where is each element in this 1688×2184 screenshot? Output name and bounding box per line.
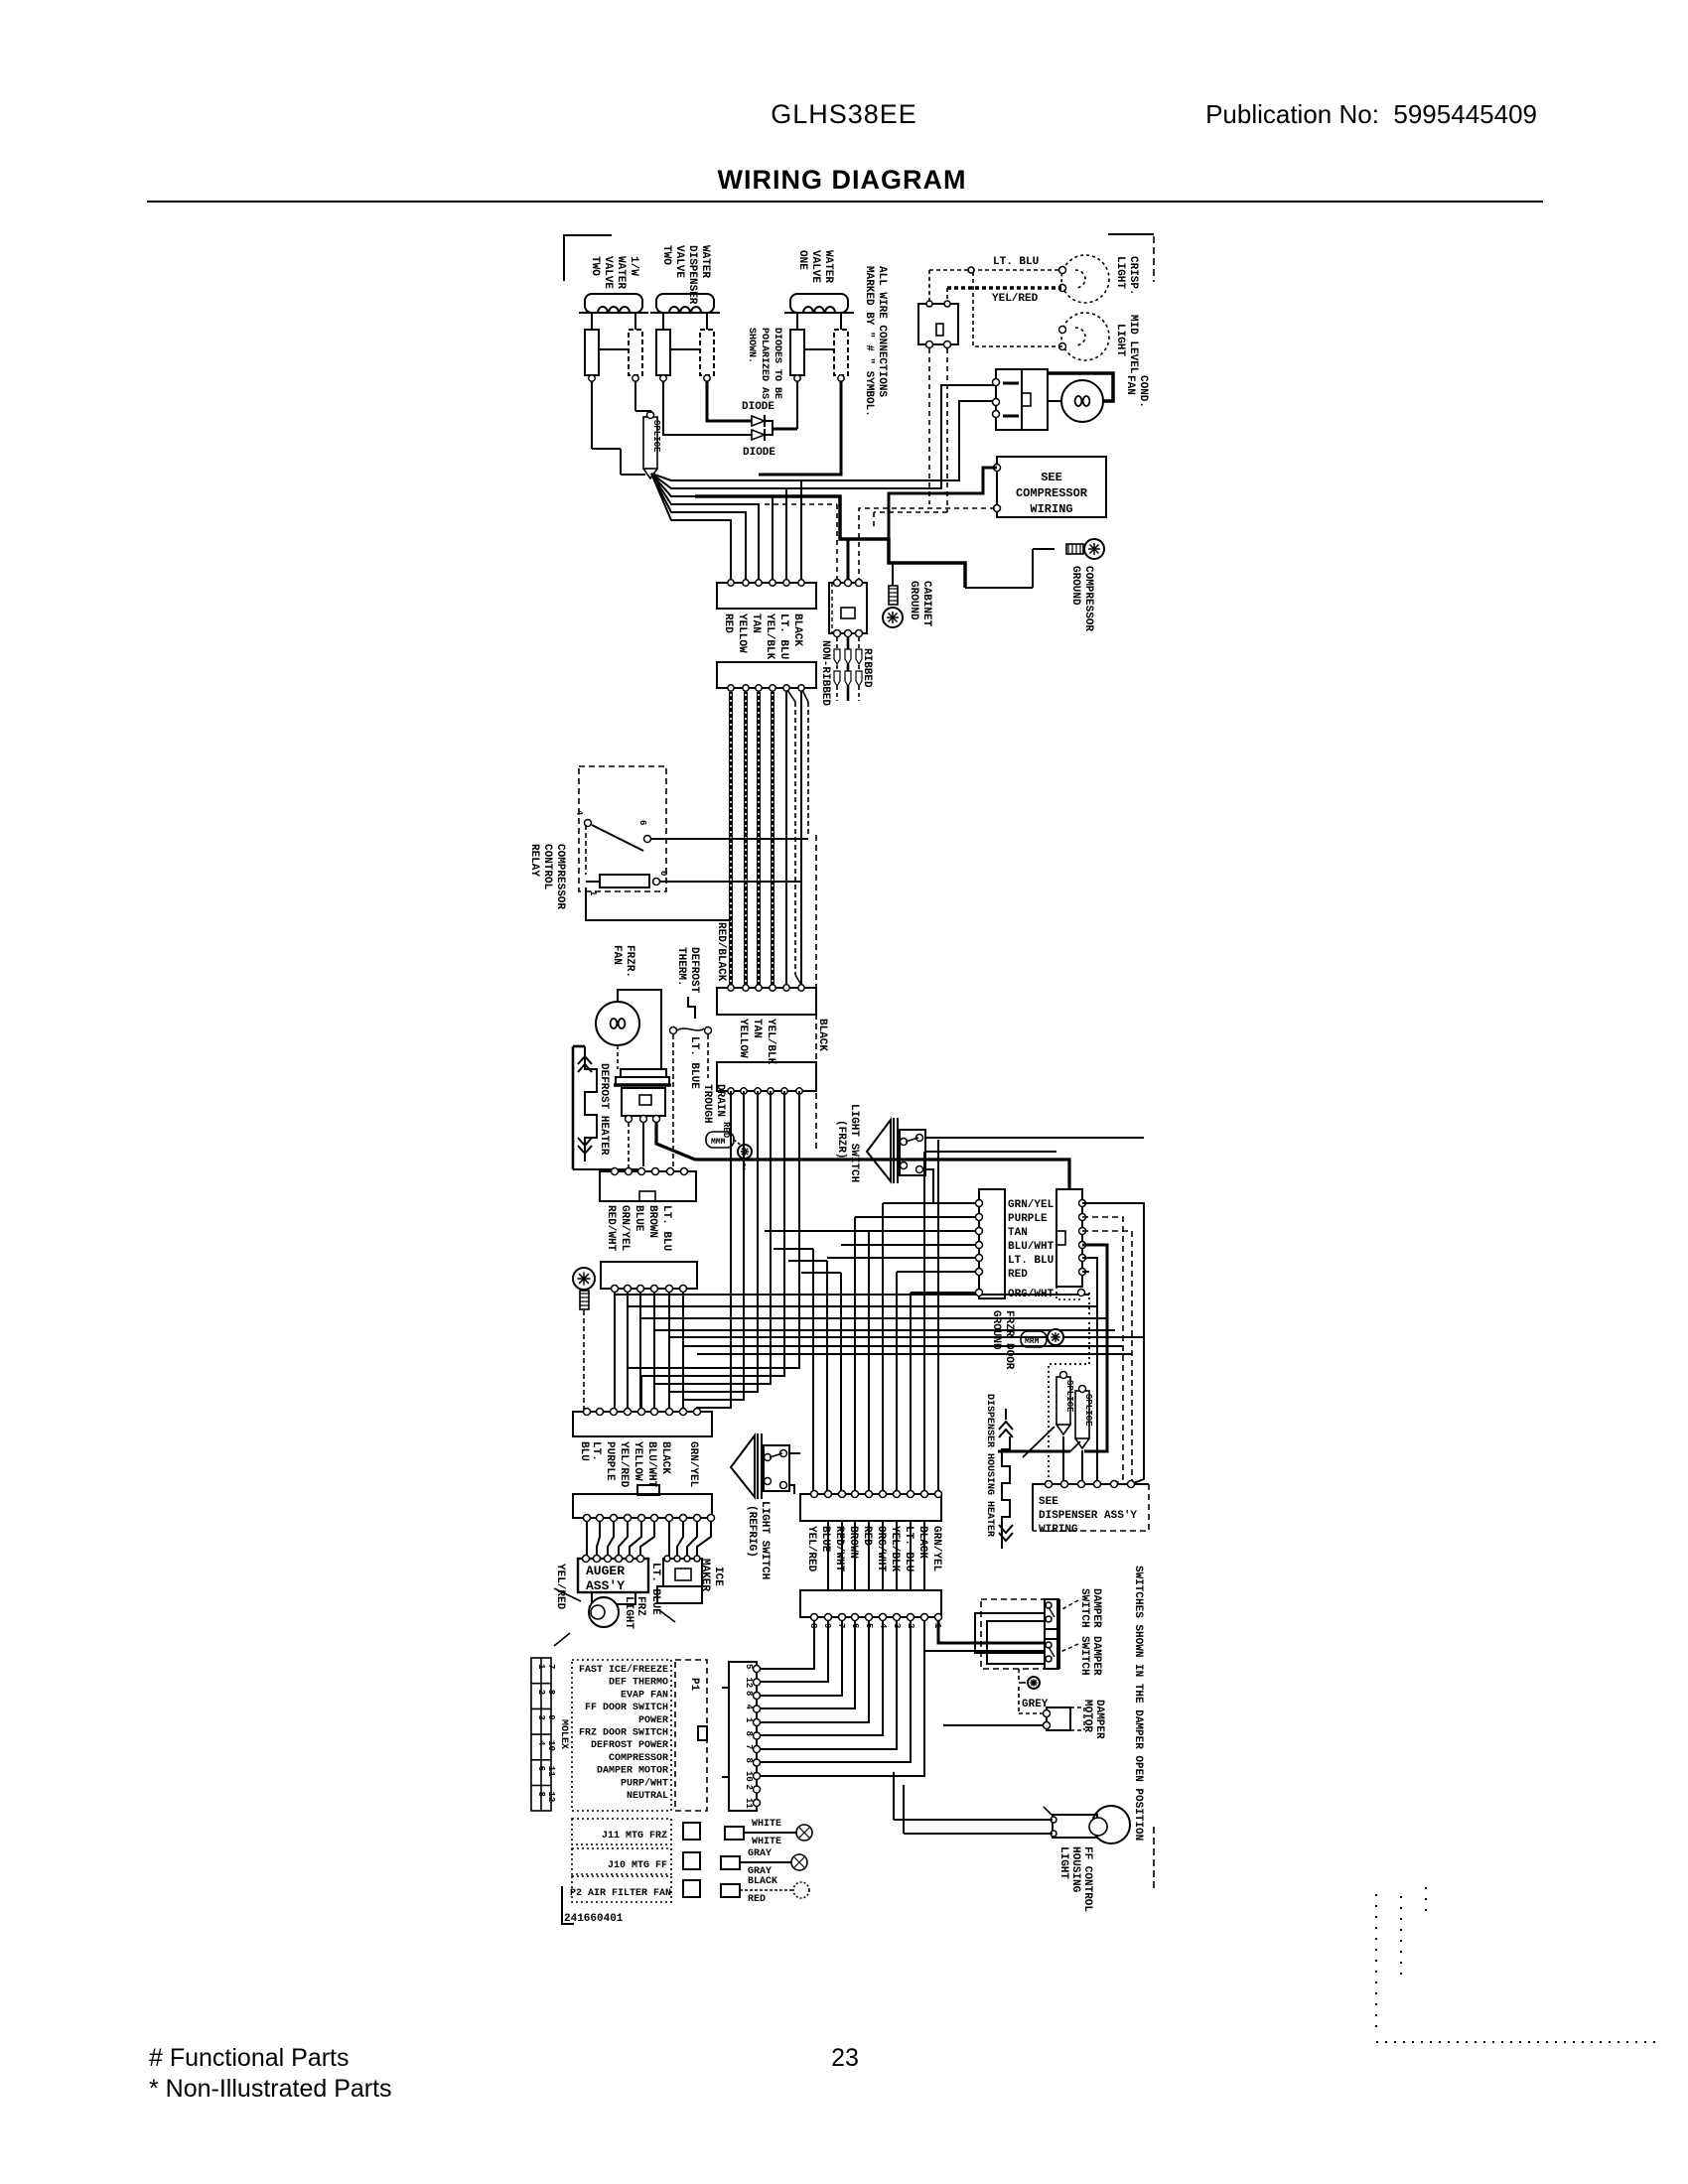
svg-text:FRZ: FRZ — [634, 1596, 646, 1616]
svg-text:WATER: WATER — [822, 250, 834, 283]
svg-text:RED: RED — [1008, 1269, 1028, 1281]
svg-text:POLARIZED AS: POLARIZED AS — [759, 328, 770, 399]
svg-text:LT. BLUE: LT. BLUE — [649, 1563, 661, 1615]
svg-text:GRN/YEL: GRN/YEL — [687, 1441, 699, 1488]
svg-text:RELAY: RELAY — [528, 844, 540, 877]
svg-text:PURPLE: PURPLE — [604, 1441, 616, 1481]
svg-text:LIGHT: LIGHT — [1057, 1846, 1069, 1879]
svg-text:COMPRESSOR: COMPRESSOR — [554, 844, 566, 909]
svg-text:LIGHT: LIGHT — [1114, 256, 1126, 289]
svg-text:FF DOOR SWITCH: FF DOOR SWITCH — [585, 1703, 668, 1713]
svg-text:6: 6 — [536, 1766, 546, 1771]
svg-text:LT.: LT. — [590, 1441, 602, 1461]
svg-text:BLACK: BLACK — [748, 1876, 777, 1887]
svg-text:VALVE: VALVE — [673, 245, 685, 278]
svg-text:ALL WIRE CONNECTIONS: ALL WIRE CONNECTIONS — [876, 266, 888, 397]
svg-text:RED: RED — [721, 1122, 731, 1139]
svg-text:2: 2 — [536, 1690, 546, 1695]
svg-text:YEL/RED: YEL/RED — [992, 293, 1039, 305]
svg-text:VALVE: VALVE — [809, 250, 821, 283]
svg-text:FF CONTROL: FF CONTROL — [1081, 1846, 1093, 1912]
svg-text:LIGHT SWITCH: LIGHT SWITCH — [848, 1104, 860, 1182]
svg-text:8: 8 — [744, 1731, 754, 1736]
svg-text:PURP/WHT: PURP/WHT — [621, 1777, 668, 1789]
svg-text:ORG/WHT: ORG/WHT — [875, 1526, 887, 1572]
svg-text:1/W: 1/W — [628, 256, 639, 276]
svg-text:9: 9 — [822, 1623, 832, 1628]
svg-text:5: 5 — [744, 1664, 754, 1669]
svg-text:YELLOW: YELLOW — [632, 1441, 643, 1481]
svg-text:WIRING: WIRING — [1039, 1524, 1078, 1536]
svg-text:BLACK: BLACK — [659, 1441, 671, 1474]
svg-text:RED/WHT: RED/WHT — [605, 1205, 617, 1252]
svg-text:BLACK: BLACK — [791, 614, 803, 646]
svg-text:FRZR DOOR: FRZR DOOR — [1003, 1310, 1015, 1370]
svg-text:FAST ICE/FREEZE: FAST ICE/FREEZE — [579, 1664, 668, 1676]
svg-text:YEL/BLK: YEL/BLK — [889, 1526, 901, 1572]
svg-text:6: 6 — [637, 820, 647, 825]
svg-text:5: 5 — [864, 1623, 874, 1628]
svg-text:GROUND: GROUND — [990, 1310, 1002, 1350]
svg-text:DIODES TO BE: DIODES TO BE — [772, 328, 782, 399]
svg-text:GROUND: GROUND — [908, 581, 919, 620]
svg-text:3: 3 — [536, 1714, 546, 1719]
svg-text:7: 7 — [836, 1623, 846, 1628]
svg-text:ICE: ICE — [712, 1567, 724, 1586]
svg-text:8: 8 — [744, 1758, 754, 1763]
svg-text:TAN: TAN — [1008, 1227, 1028, 1239]
svg-text:SWITCH: SWITCH — [1078, 1636, 1090, 1676]
svg-text:10: 10 — [546, 1740, 556, 1751]
svg-text:THERM.: THERM. — [675, 947, 687, 987]
svg-text:DRAIN: DRAIN — [714, 1084, 726, 1117]
svg-text:VALVE: VALVE — [602, 256, 614, 289]
svg-text:LT. BLUE: LT. BLUE — [688, 1036, 700, 1089]
svg-text:4: 4 — [536, 1740, 546, 1746]
svg-text:LT. BLU: LT. BLU — [993, 256, 1039, 268]
svg-text:GRN/YEL: GRN/YEL — [930, 1526, 942, 1572]
svg-text:COND.: COND. — [1137, 375, 1149, 408]
svg-text:YELLOW: YELLOW — [736, 614, 748, 653]
svg-text:FRZR.: FRZR. — [624, 945, 635, 978]
svg-text:BLU/WHT: BLU/WHT — [1008, 1241, 1055, 1253]
svg-text:LIGHT SWITCH: LIGHT SWITCH — [759, 1501, 771, 1579]
svg-text:WIRING DIAGRAM: WIRING DIAGRAM — [718, 165, 967, 195]
svg-text:COMPRESSOR: COMPRESSOR — [1082, 566, 1094, 631]
svg-text:DEF THERMO: DEF THERMO — [609, 1678, 668, 1689]
svg-text:DIODE: DIODE — [742, 401, 774, 413]
svg-text:SPLICE: SPLICE — [1083, 1394, 1093, 1427]
svg-text:SPLICE: SPLICE — [1064, 1380, 1074, 1413]
svg-text:P2 AIR FILTER FAN: P2 AIR FILTER FAN — [570, 1888, 671, 1899]
svg-text:WATER: WATER — [699, 245, 711, 278]
svg-text:WHITE: WHITE — [752, 1837, 781, 1847]
svg-text:GLHS38EE: GLHS38EE — [771, 99, 917, 129]
svg-text:DAMPER: DAMPER — [1090, 1636, 1102, 1676]
svg-text:DISPENSER HOUSING HEATER: DISPENSER HOUSING HEATER — [984, 1394, 995, 1537]
svg-text:4: 4 — [744, 1705, 754, 1710]
svg-text:2: 2 — [744, 1785, 754, 1790]
svg-text:TWO: TWO — [589, 256, 601, 276]
svg-text:RED/WHT: RED/WHT — [833, 1526, 845, 1572]
svg-text:YEL/RED: YEL/RED — [618, 1441, 630, 1488]
svg-text:TAN: TAN — [750, 614, 762, 633]
svg-text:LT. BLU: LT. BLU — [777, 614, 789, 659]
svg-text:BROWN: BROWN — [847, 1526, 859, 1559]
svg-text:GRN/YEL: GRN/YEL — [619, 1205, 631, 1252]
svg-text:LIGHT: LIGHT — [1114, 324, 1126, 356]
svg-text:8: 8 — [546, 1690, 556, 1695]
svg-text:BLACK: BLACK — [916, 1526, 928, 1559]
svg-text:COMPRESSOR: COMPRESSOR — [1016, 486, 1088, 500]
svg-text:WIRING: WIRING — [1030, 502, 1072, 516]
svg-text:MRM: MRM — [1025, 1337, 1040, 1346]
svg-text:DEFROST POWER: DEFROST POWER — [591, 1740, 668, 1751]
svg-text:NON-RIBBED: NON-RIBBED — [819, 640, 831, 706]
svg-text:SHOWN.: SHOWN. — [746, 328, 757, 363]
svg-text:Publication No: 5995445409: Publication No: 5995445409 — [1205, 99, 1537, 129]
svg-text:1: 1 — [744, 1717, 754, 1723]
svg-text:BLU/WHT: BLU/WHT — [645, 1441, 657, 1488]
svg-text:SWITCHES SHOWN IN THE DAMPER O: SWITCHES SHOWN IN THE DAMPER OPEN POSITI… — [1132, 1566, 1144, 1841]
svg-text:MAKER: MAKER — [699, 1559, 711, 1591]
svg-text:J10 MTG FF: J10 MTG FF — [608, 1860, 667, 1871]
svg-text:6: 6 — [850, 1623, 860, 1628]
svg-text:LT. BLU: LT. BLU — [1008, 1255, 1054, 1267]
svg-text:1: 1 — [588, 890, 598, 896]
svg-text:7: 7 — [744, 1744, 754, 1749]
svg-text:ONE: ONE — [796, 250, 808, 270]
svg-text:10: 10 — [744, 1771, 754, 1782]
svg-text:7: 7 — [546, 1664, 556, 1669]
svg-text:SEE: SEE — [1039, 1496, 1058, 1508]
svg-text:TROUGH: TROUGH — [701, 1084, 713, 1124]
svg-text:MOLEX: MOLEX — [558, 1719, 569, 1749]
svg-text:8: 8 — [808, 1623, 818, 1628]
svg-text:WATER: WATER — [615, 256, 627, 289]
svg-text:4: 4 — [574, 810, 584, 816]
svg-text:YELLOW: YELLOW — [737, 1019, 749, 1058]
svg-text:POWER: POWER — [638, 1715, 668, 1726]
svg-text:GROUND: GROUND — [1069, 566, 1081, 606]
svg-text:MID LEVEL: MID LEVEL — [1127, 315, 1139, 374]
svg-text:12: 12 — [546, 1792, 556, 1803]
svg-text:PURPLE: PURPLE — [1008, 1213, 1048, 1225]
svg-text:FRZ DOOR SWITCH: FRZ DOOR SWITCH — [579, 1728, 668, 1739]
svg-text:RED: RED — [722, 614, 734, 633]
svg-text:9: 9 — [546, 1714, 556, 1719]
svg-text:COMPRESSOR: COMPRESSOR — [609, 1753, 668, 1764]
svg-text:RED: RED — [861, 1526, 873, 1546]
svg-text:LIGHT: LIGHT — [623, 1596, 634, 1629]
svg-text:SPLICE: SPLICE — [651, 420, 661, 453]
svg-text:* Non-Illustrated Parts: * Non-Illustrated Parts — [149, 2075, 392, 2103]
svg-text:BLACK: BLACK — [816, 1019, 828, 1051]
svg-text:ASS'Y: ASS'Y — [586, 1578, 625, 1593]
svg-text:P1: P1 — [688, 1678, 700, 1692]
svg-text:WHITE: WHITE — [752, 1819, 781, 1830]
svg-text:ORG/WHT: ORG/WHT — [1008, 1289, 1055, 1300]
svg-text:3: 3 — [892, 1623, 902, 1628]
svg-text:(REFRIG): (REFRIG) — [746, 1505, 758, 1558]
svg-text:DISPENSER ASS'Y: DISPENSER ASS'Y — [1039, 1510, 1137, 1522]
svg-text:MOTOR: MOTOR — [1081, 1700, 1093, 1732]
svg-text:DAMPER: DAMPER — [1090, 1588, 1102, 1628]
svg-text:4: 4 — [878, 1623, 888, 1629]
svg-text:DEFROST: DEFROST — [688, 947, 700, 994]
svg-text:FAN: FAN — [1124, 375, 1136, 395]
svg-text:241660401: 241660401 — [564, 1913, 624, 1925]
svg-text:GRN/YEL: GRN/YEL — [1008, 1199, 1055, 1211]
svg-text:0: 0 — [658, 871, 668, 876]
svg-text:DEFROST HEATER: DEFROST HEATER — [598, 1063, 610, 1156]
svg-text:DAMPER MOTOR: DAMPER MOTOR — [597, 1766, 668, 1777]
svg-text:8: 8 — [744, 1691, 754, 1696]
svg-text:GREY: GREY — [1022, 1699, 1049, 1710]
svg-text:DIODE: DIODE — [743, 447, 775, 459]
svg-text:23: 23 — [831, 2044, 859, 2072]
svg-text:LT. BLU: LT. BLU — [660, 1205, 672, 1251]
svg-text:TWO: TWO — [660, 245, 672, 265]
svg-text:EVAP FAN: EVAP FAN — [621, 1690, 668, 1701]
svg-text:CONTROL: CONTROL — [541, 844, 553, 890]
svg-text:BLUE: BLUE — [633, 1205, 644, 1232]
svg-text:RED/BLACK: RED/BLACK — [715, 922, 727, 982]
svg-text:SWITCH: SWITCH — [1078, 1588, 1090, 1628]
svg-text:DISPENSER: DISPENSER — [686, 245, 698, 305]
svg-text:CRISP.: CRISP. — [1127, 256, 1139, 296]
svg-text:NEUTRAL: NEUTRAL — [627, 1791, 668, 1802]
svg-text:2: 2 — [906, 1623, 915, 1628]
svg-text:(FRZR): (FRZR) — [835, 1120, 847, 1160]
svg-text:YEL/BLK: YEL/BLK — [765, 1019, 776, 1065]
svg-text:AUGER: AUGER — [586, 1564, 625, 1578]
svg-text:LT. BLU: LT. BLU — [903, 1526, 914, 1571]
svg-text:BLU: BLU — [578, 1441, 590, 1461]
svg-text:YEL/RED: YEL/RED — [805, 1526, 817, 1572]
svg-text:BLUE: BLUE — [819, 1526, 831, 1553]
svg-text:FAN: FAN — [611, 945, 623, 965]
svg-text:MMM: MMM — [711, 1138, 726, 1147]
svg-text:GRAY: GRAY — [748, 1848, 772, 1859]
svg-text:YEL/RED: YEL/RED — [554, 1564, 566, 1610]
svg-text:DAMPER: DAMPER — [1093, 1700, 1105, 1739]
svg-text:MARKED BY " # " SYMBOL.: MARKED BY " # " SYMBOL. — [863, 266, 875, 417]
svg-text:SEE: SEE — [1041, 471, 1062, 484]
svg-text:11: 11 — [744, 1798, 754, 1809]
svg-text:11: 11 — [546, 1766, 556, 1777]
svg-text:# Functional Parts: # Functional Parts — [149, 2044, 350, 2072]
svg-text:8: 8 — [536, 1792, 546, 1797]
svg-text:12: 12 — [744, 1678, 754, 1689]
svg-text:BROWN: BROWN — [646, 1205, 658, 1238]
svg-text:1: 1 — [536, 1664, 546, 1670]
svg-text:RED: RED — [748, 1894, 766, 1905]
svg-text:CABINET: CABINET — [920, 581, 932, 627]
svg-text:HOUSING: HOUSING — [1069, 1846, 1081, 1893]
svg-text:J11 MTG FRZ: J11 MTG FRZ — [602, 1831, 667, 1842]
svg-text:RIBBED: RIBBED — [861, 648, 873, 688]
svg-text:YEL/BLK: YEL/BLK — [764, 614, 775, 660]
svg-text:TAN: TAN — [751, 1019, 763, 1038]
